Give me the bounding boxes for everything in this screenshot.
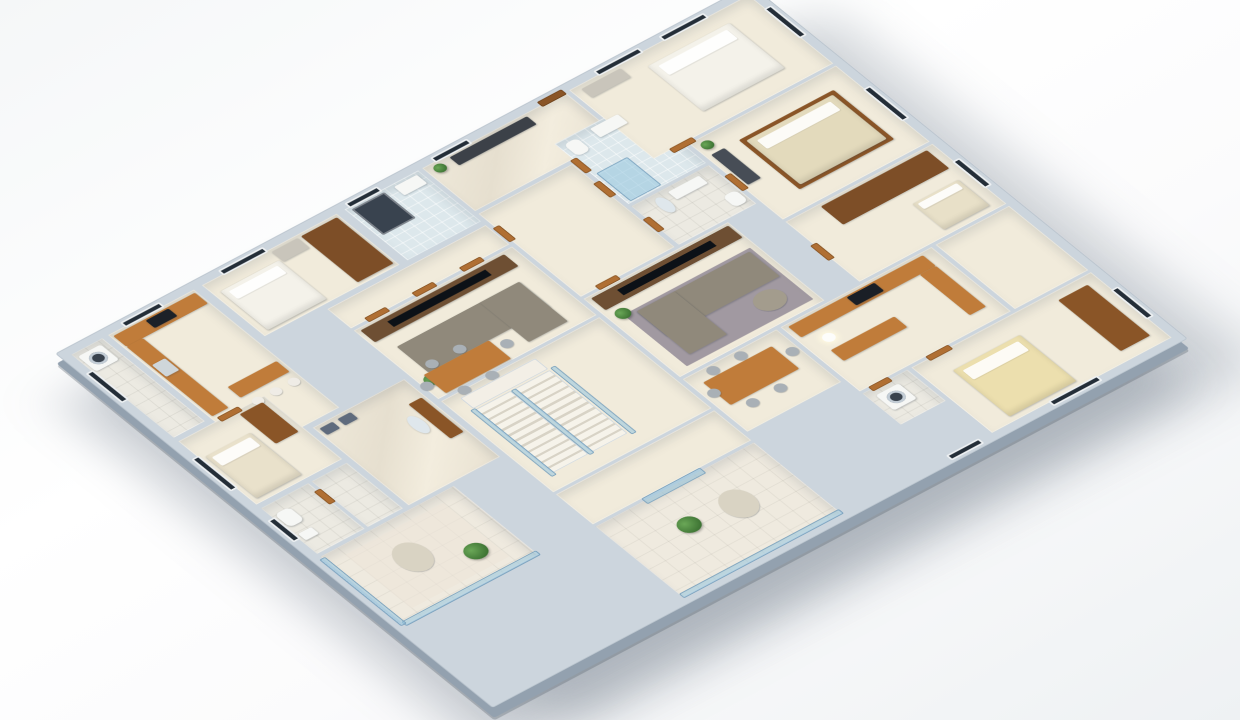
render-viewport	[0, 0, 1240, 720]
floorplan-scene	[55, 0, 1185, 707]
window	[946, 438, 985, 460]
building-footprint	[55, 0, 1188, 708]
